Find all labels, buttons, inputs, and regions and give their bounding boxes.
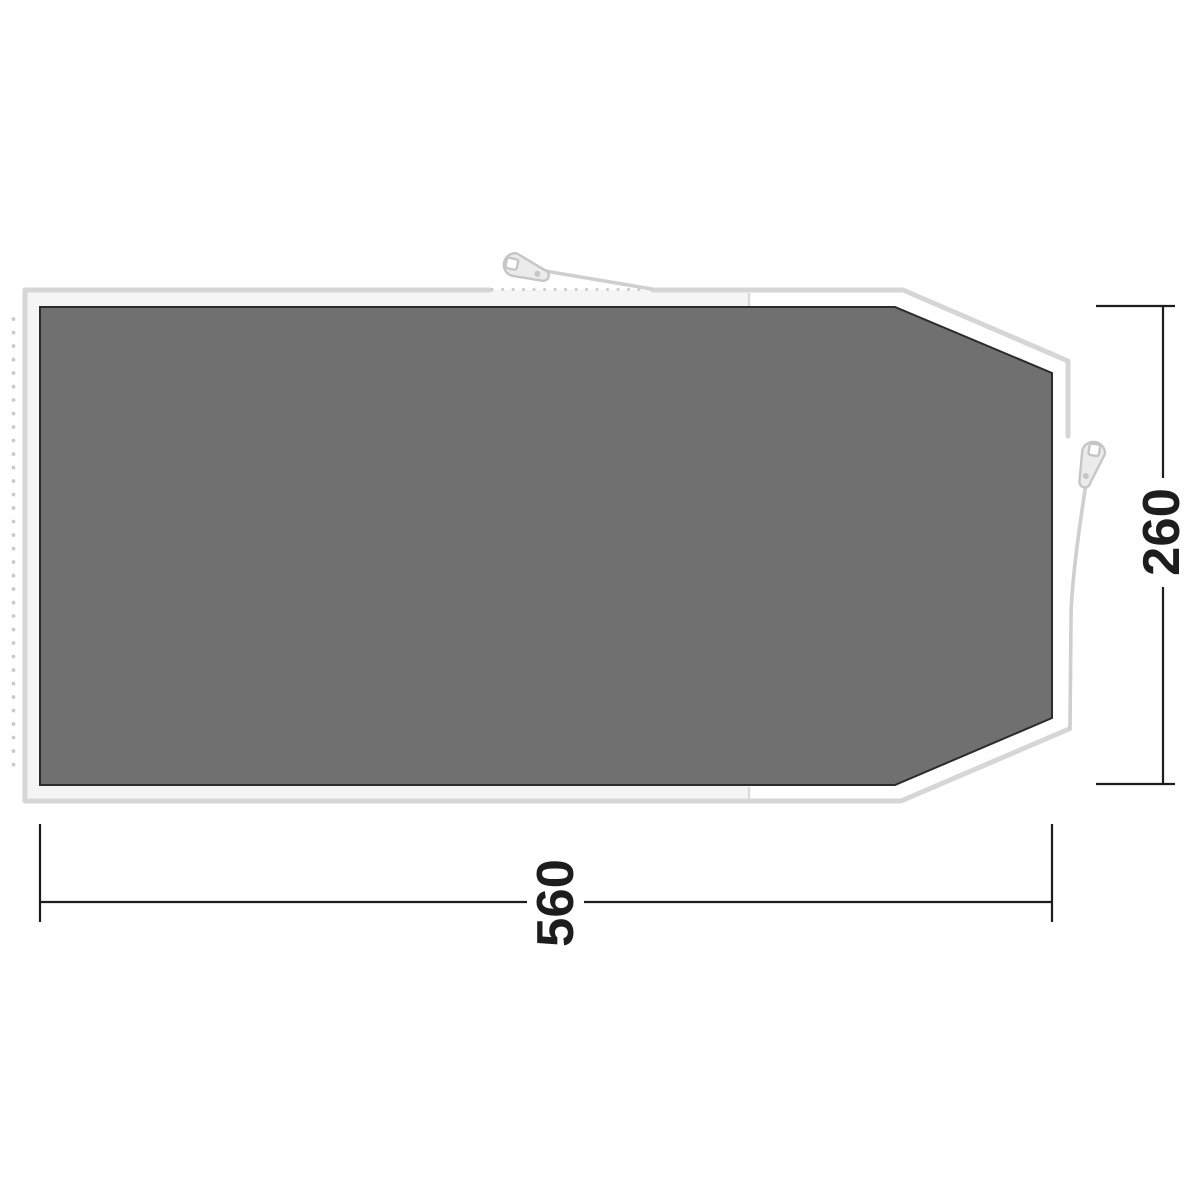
tent-peg-icon [502, 251, 553, 284]
depth-dimension: 260 [1096, 306, 1191, 784]
width-dimension: 560 [40, 824, 1052, 947]
groundsheet [14, 290, 1070, 802]
guy-line-right [1070, 484, 1086, 729]
width-dimension-label: 560 [527, 859, 585, 947]
guy-line-top [545, 271, 652, 289]
tent-footprint-page: 560 260 [0, 0, 1196, 1196]
tent-peg-icon [1077, 440, 1107, 490]
depth-dimension-label: 260 [1133, 488, 1191, 576]
footprint-diagram: 560 260 [0, 0, 1196, 1196]
floor-area [40, 307, 1052, 785]
